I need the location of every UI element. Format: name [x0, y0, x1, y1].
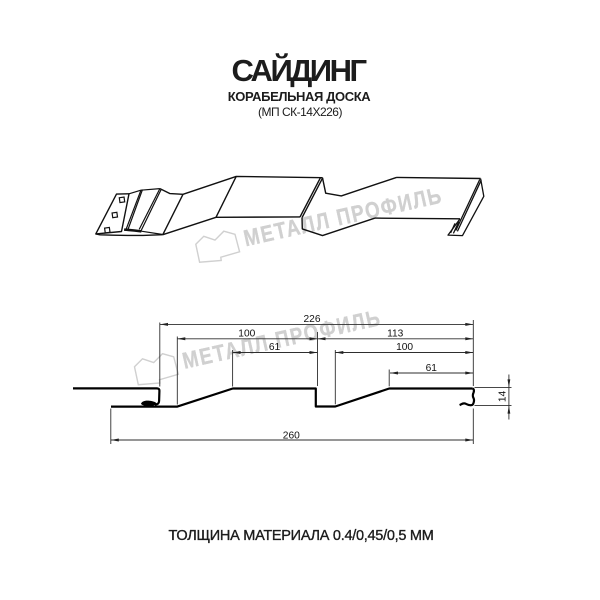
svg-text:260: 260	[283, 430, 300, 441]
svg-text:14: 14	[498, 391, 509, 403]
svg-text:100: 100	[238, 329, 255, 340]
svg-text:100: 100	[396, 342, 413, 353]
svg-text:МЕТАЛЛ ПРОФИЛЬ: МЕТАЛЛ ПРОФИЛЬ	[180, 305, 383, 374]
svg-text:61: 61	[269, 342, 281, 353]
svg-text:61: 61	[426, 363, 438, 374]
svg-text:113: 113	[387, 329, 404, 340]
svg-text:226: 226	[304, 314, 321, 325]
